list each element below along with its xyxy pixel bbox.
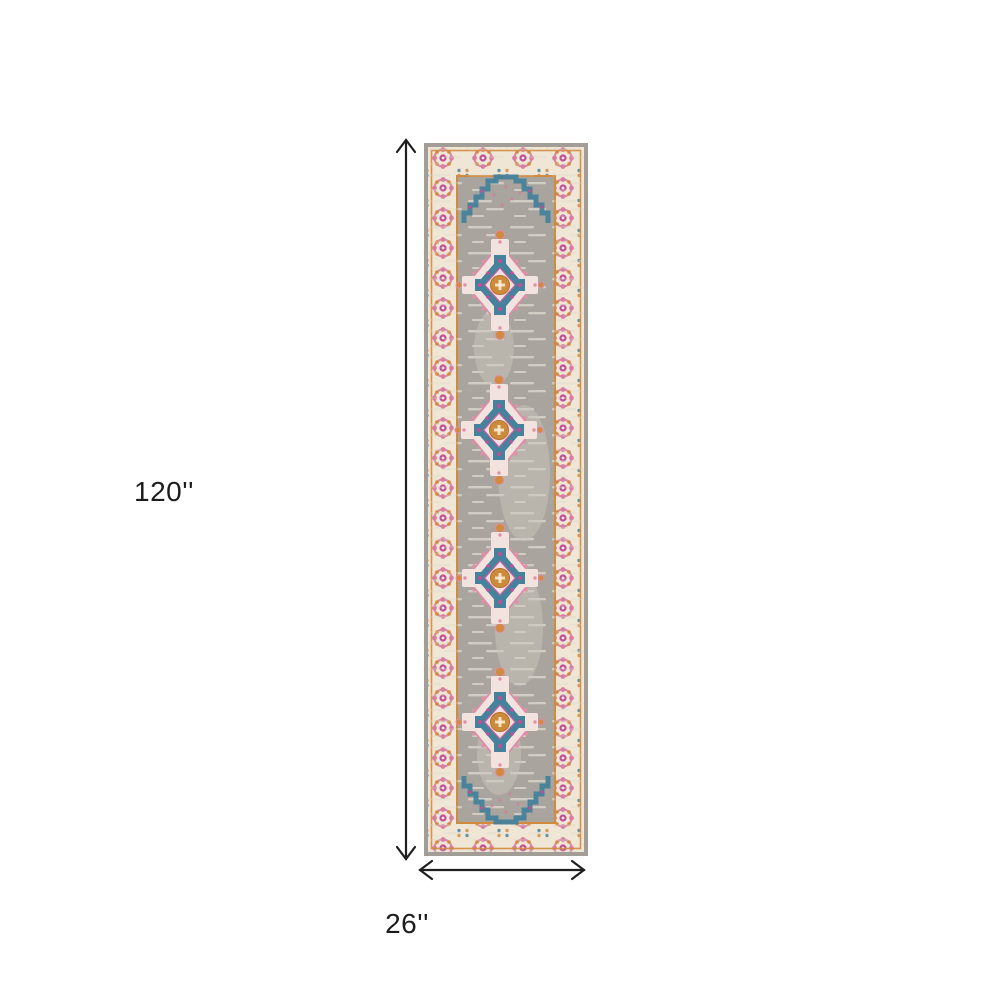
height-dimension-arrow	[394, 135, 418, 865]
height-dimension-label: 120''	[118, 476, 210, 508]
width-dimension-label: 26''	[362, 908, 452, 940]
width-dimension-arrow	[414, 858, 590, 882]
rug-illustration	[424, 143, 588, 856]
dimension-diagram: 120'' 26''	[0, 0, 1000, 1000]
rug-image	[424, 143, 588, 856]
